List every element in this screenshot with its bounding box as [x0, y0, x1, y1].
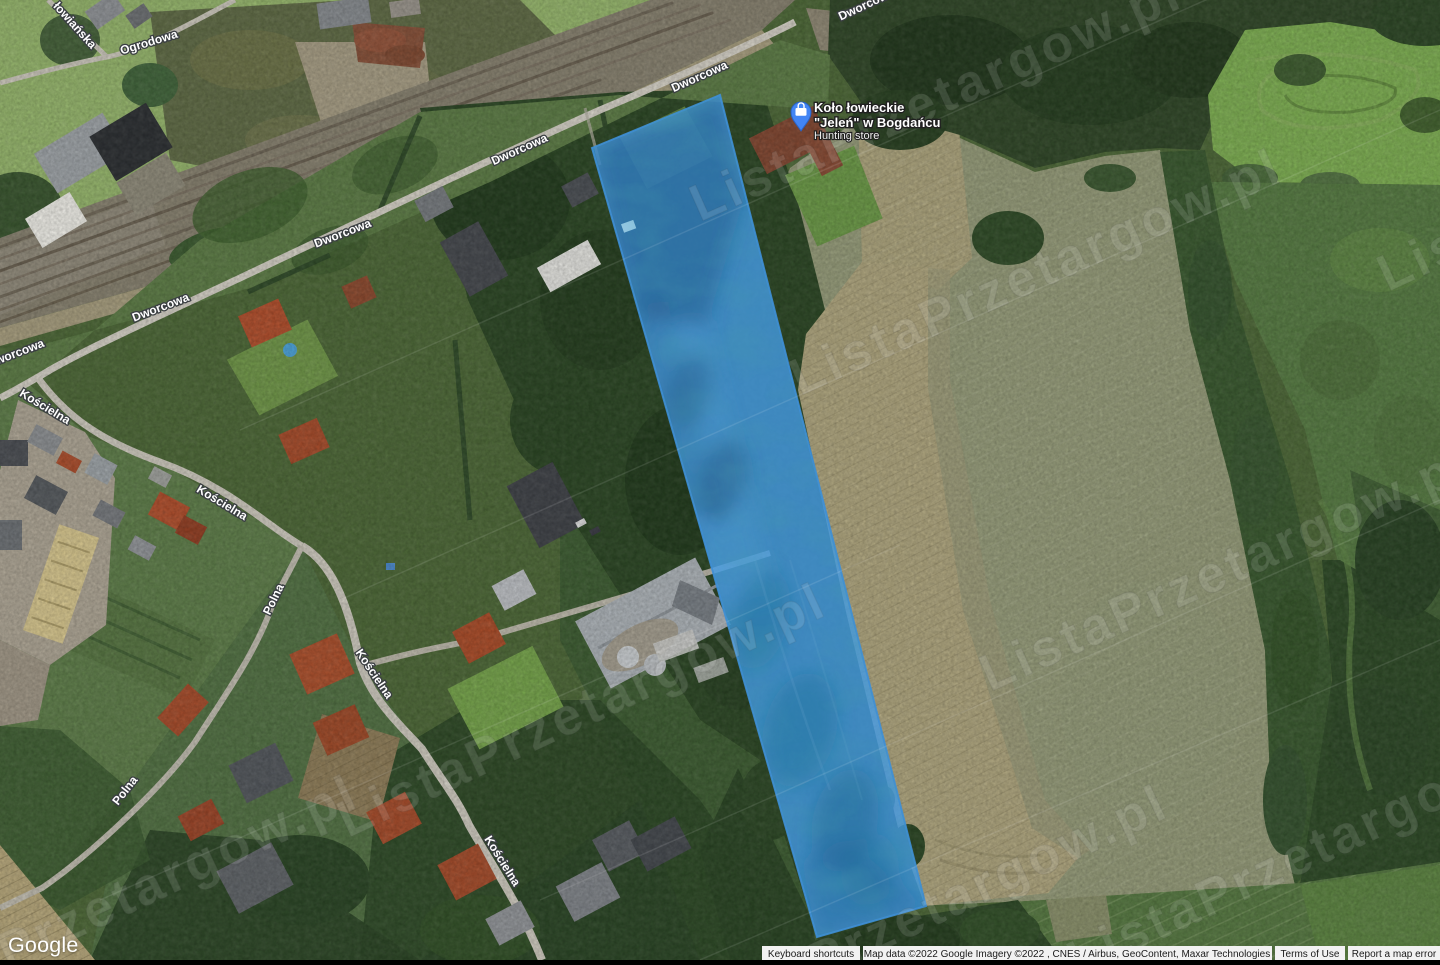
svg-text:Hunting store: Hunting store: [814, 130, 879, 142]
svg-text:Google: Google: [8, 933, 79, 957]
svg-text:Koło łowieckie: Koło łowieckie: [814, 100, 904, 115]
svg-text:Report a map error: Report a map error: [1352, 949, 1437, 960]
svg-text:Terms of Use: Terms of Use: [1281, 949, 1340, 960]
svg-text:"Jeleń" w Bogdańcu: "Jeleń" w Bogdańcu: [814, 115, 941, 130]
svg-text:Map data ©2022 Google Imagery: Map data ©2022 Google Imagery ©2022 , CN…: [864, 949, 1270, 960]
svg-text:Keyboard shortcuts: Keyboard shortcuts: [768, 949, 854, 960]
